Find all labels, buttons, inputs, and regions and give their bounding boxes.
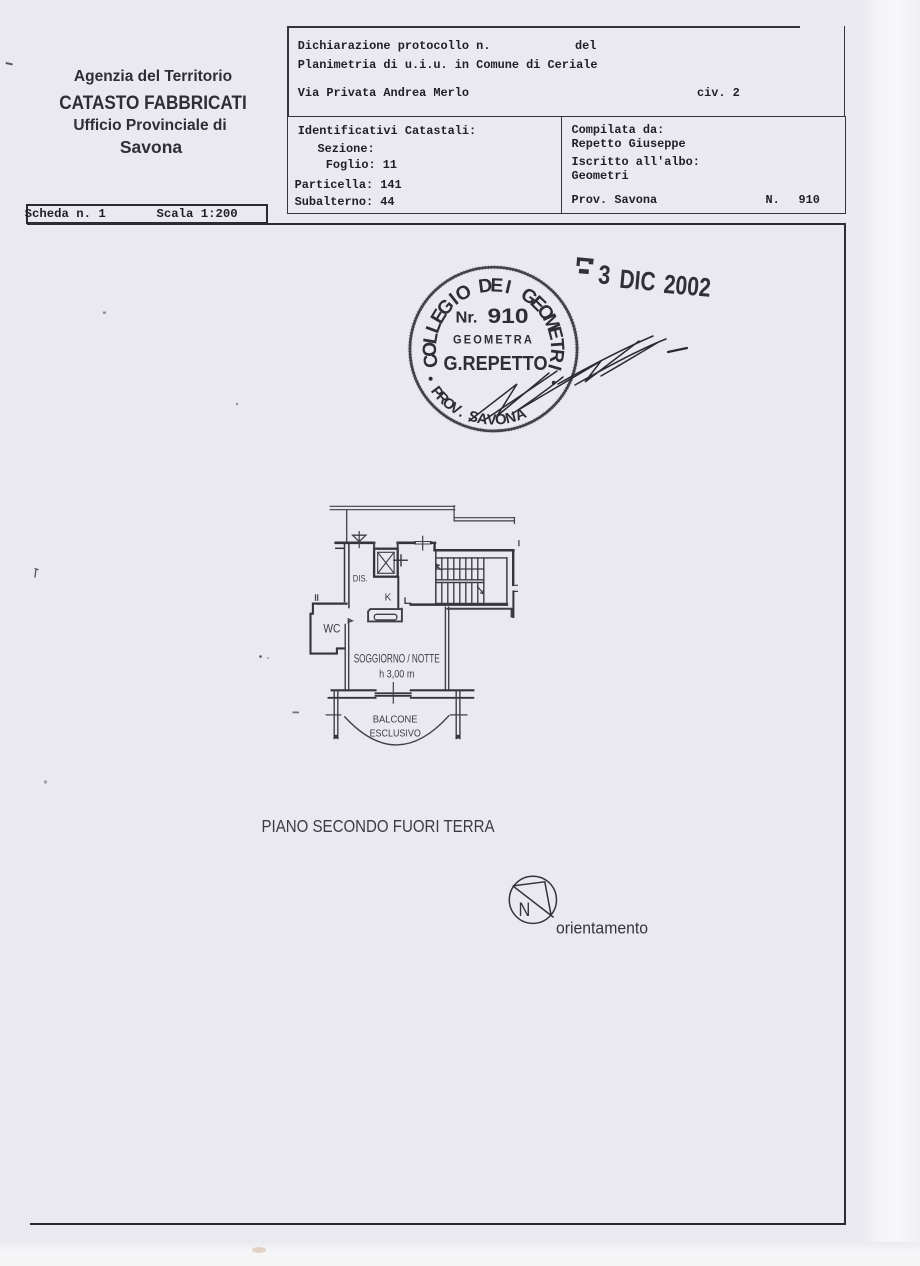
svg-text:orientamento: orientamento	[556, 919, 648, 938]
svg-text:910: 910	[488, 304, 529, 328]
svg-text:DIC: DIC	[618, 264, 656, 297]
svg-text:GEOMETRA: GEOMETRA	[453, 333, 534, 347]
svg-text:3: 3	[597, 259, 612, 290]
svg-text:N: N	[519, 900, 531, 921]
svg-text:PIANO SECONDO FUORI TERRA: PIANO SECONDO FUORI TERRA	[262, 816, 495, 836]
svg-text:I: I	[503, 277, 513, 299]
svg-text:G.REPETTO: G.REPETTO	[444, 352, 548, 375]
svg-text:K: K	[385, 592, 392, 603]
svg-text:BALCONE: BALCONE	[373, 714, 418, 726]
svg-text:E: E	[490, 275, 504, 297]
svg-text:ESCLUSIVO: ESCLUSIVO	[370, 728, 421, 740]
svg-text:WC: WC	[323, 621, 340, 635]
svg-text:Nr.: Nr.	[456, 310, 478, 327]
svg-text:2002: 2002	[663, 269, 712, 303]
svg-text:h 3,00 m: h 3,00 m	[379, 668, 414, 680]
svg-text:DIS.: DIS.	[353, 574, 368, 584]
svg-text:SOGGIORNO / NOTTE: SOGGIORNO / NOTTE	[354, 652, 440, 665]
